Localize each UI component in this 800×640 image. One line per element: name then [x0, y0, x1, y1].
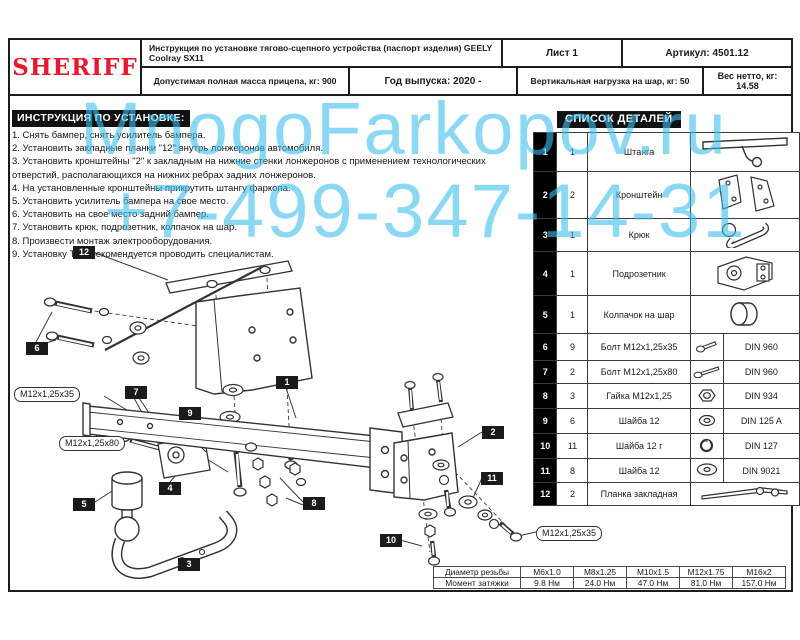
- article-number: Артикул: 4501.12: [621, 40, 791, 66]
- sheriff-logo: SHERIFF: [12, 54, 137, 81]
- header-table: SHERIFF Инструкция по установке тягово-с…: [10, 40, 791, 96]
- header-rows: Инструкция по установке тягово-сцепного …: [142, 40, 791, 94]
- vertical-load: Вертикальная нагрузка на шар, кг: 50: [516, 68, 702, 94]
- brand-logo-cell: SHERIFF: [10, 40, 142, 94]
- net-weight: Вес нетто, кг: 14.58: [702, 68, 791, 94]
- sheet-number: Лист 1: [501, 40, 621, 66]
- production-year: Год выпуска: 2020 -: [348, 68, 516, 94]
- document-title: Инструкция по установке тягово-сцепного …: [142, 40, 501, 66]
- trailer-mass: Допустимая полная масса прицепа, кг: 900: [142, 68, 348, 94]
- header-row-1: Инструкция по установке тягово-сцепного …: [142, 40, 791, 68]
- instruction-sheet-page: { "header": { "logo": "SHERIFF", "title"…: [0, 0, 800, 640]
- instructions-title: ИНСТРУКЦИЯ ПО УСТАНОВКЕ:: [12, 110, 190, 127]
- header-row-2: Допустимая полная масса прицепа, кг: 900…: [142, 68, 791, 94]
